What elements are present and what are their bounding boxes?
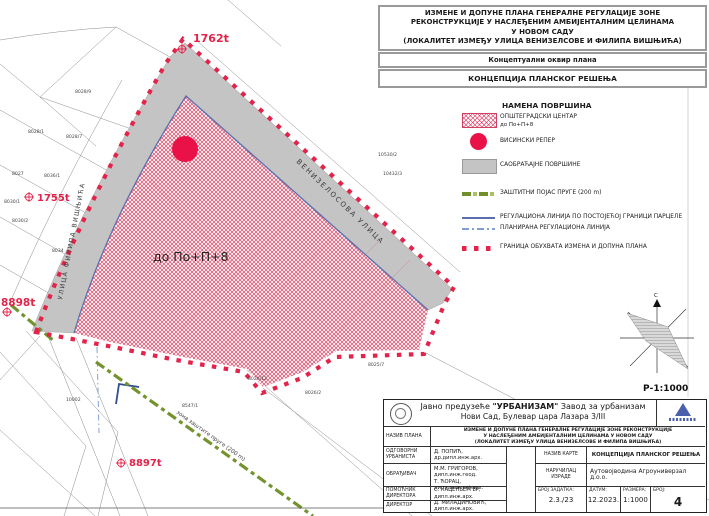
legend-item-label: ПЛАНИРАНА РЕГУЛАЦИОНА ЛИНИЈА [500,225,610,231]
razmera-cell: РАЗМЕРА: 1:1000 [621,487,651,512]
benchmark-label: 8898t [1,297,35,309]
svg-text:8027: 8027 [12,171,24,177]
blue-solid-line-icon [462,217,495,219]
svg-text:8036/1: 8036/1 [44,173,60,179]
svg-text:8547/1: 8547/1 [182,403,198,409]
benchmark-label: 1762t [193,32,229,45]
svg-text:10002: 10002 [66,397,81,403]
signature-column [507,447,536,512]
red-circle-icon [470,133,487,150]
narucilac-value: Аутовојводина Агроуниверзал д.о.о. [587,464,705,487]
naziv-karte-value: КОНЦЕПЦИЈА ПЛАНСКОГ РЕШЕЊА [587,447,705,464]
railway-zone-label: зона заштите пруге (200 m) [175,410,246,463]
gray-area-swatch-icon [462,159,497,174]
legend-item-label: РЕГУЛАЦИОНА ЛИНИЈА ПО ПОСТОЈЕЋОЈ ГРАНИЦИ… [500,214,682,220]
title-block-header: Јавно предузеће "УРБАНИЗАМ" Завод за урб… [384,400,705,427]
narucilac-label: НАРУЧИЛАЦ ИЗРАДЕ [536,464,587,487]
sheet-header: ИЗМЕНЕ И ДОПУНЕ ПЛАНА ГЕНЕРАЛНЕ РЕГУЛАЦИ… [378,5,707,88]
legend-item-label: ГРАНИЦА ОБУХВАТА ИЗМЕНА И ДОПУНА ПЛАНА [500,244,647,250]
broj-value: 4 [651,495,705,509]
pomocnik-label: ПОМОЋНИК ДИРЕКТОРА [384,487,431,501]
pomocnik-value: С. КАЦЕНБЕРГЕР, дипл.инж.арх. [431,487,507,501]
red-crosshatch-swatch-icon [462,113,497,128]
red-dashed-boundary-icon [462,246,495,251]
legend-title: НАМЕНА ПОВРШИНА [502,101,592,110]
plan-title-line: У НОВОМ САДУ [381,28,704,37]
svg-text:8030/1: 8030/1 [4,199,20,205]
plan-title: ИЗМЕНЕ И ДОПУНЕ ПЛАНА ГЕНЕРАЛНЕ РЕГУЛАЦИ… [378,5,707,51]
legend-item-label: ОПШТЕГРАДСКИ ЦЕНТАР [500,114,577,120]
legend: НАМЕНА ПОВРШИНА ОПШТЕГРАДСКИ ЦЕНТАР до П… [458,98,706,260]
svg-text:8030/2: 8030/2 [12,218,28,224]
plan-subtitle: Концептуални оквир плана [378,52,707,68]
odgovorni-value: Д. ПОПИЋ, др.дипл.инж.арх. [431,447,507,464]
svg-text:8026/2: 8026/2 [305,390,321,396]
obradjivac-label: ОБРАЂИВАЧ [384,464,431,487]
naziv-plana-line: (ЛОКАЛИТЕТ ИЗМЕЂУ УЛИЦА ВЕНИЗЕЛСОВЕ И ФИ… [431,440,705,446]
north-orientation-figure: С Р-1:1000 [620,293,694,394]
legend-item-label: ЗАШТИТНИ ПОЈАС ПРУГЕ (200 m) [500,190,601,196]
broj-zadatka-value: 2.3./23 [536,496,586,504]
direktor-value: Д. МИЛАДИНОВИЋ, дипл.инж.арх. [431,501,507,512]
plan-title-line: ИЗМЕНЕ И ДОПУНЕ ПЛАНА ГЕНЕРАЛНЕ РЕГУЛАЦИ… [381,9,704,18]
company-name-line: Јавно предузеће "УРБАНИЗАМ" Завод за урб… [414,402,652,411]
map-title: КОНЦЕПЦИЈА ПЛАНСКОГ РЕШЕЊА [378,69,707,88]
legend-item-label: САОБРАЋАЈНЕ ПОВРШИНЕ [500,162,580,168]
broj-cell: БРОЈ: 4 [651,487,705,512]
svg-text:8026/12: 8026/12 [248,376,267,382]
planned-regulation-detail [116,384,139,404]
benchmark-circle [172,136,198,162]
obradjivac-value: М.М. ГРИГОРОВ, дипл.инж.геод. Т. ЋОРАЦ, … [431,464,507,487]
client-logo-text-icon [669,418,697,421]
broj-zadatka-cell: БРОЈ ЗАДАТКА: 2.3./23 [536,487,587,512]
company-address: Нови Сад, Булевар цара Лазара 3/III [414,412,652,421]
svg-text:8028/9: 8028/9 [75,89,91,95]
plan-title-line: РЕКОНСТРУКЦИЈЕ У НАСЛЕЂЕНИМ АМБИЈЕНТАЛНИ… [381,18,704,27]
svg-text:8034: 8034 [52,248,64,254]
plan-title-line: (ЛОКАЛИТЕТ ИЗМЕЂУ УЛИЦА ВЕНИЗЕЛСОВЕ И ФИ… [381,37,704,46]
legend-item-label: ВИСИНСКИ РЕПЕР [500,138,555,144]
obradjivac-value-line: М.М. ГРИГОРОВ, дипл.инж.геод. [434,466,503,479]
zone-height-label: до По+П+8 [153,249,229,264]
plan-sheet: 1762t 1755t 8898t 8897t до По+П+8 УЛИЦА … [0,0,709,516]
naziv-plana-value: ИЗМЕНЕ И ДОПУНЕ ПЛАНА ГЕНЕРАЛНЕ РЕГУЛАЦИ… [431,427,705,447]
datum-value: 12.2023. [587,496,620,504]
naziv-plana-label: НАЗИВ ПЛАНА [384,427,431,447]
title-block: Јавно предузеће "УРБАНИЗАМ" Завод за урб… [383,399,707,513]
svg-text:8028/1: 8028/1 [28,129,44,135]
datum-label: ДАТУМ: [587,487,620,494]
benchmark-marker [116,458,126,468]
client-logo [656,400,709,426]
company-seal-icon [390,403,412,425]
broj-label: БРОЈ: [651,487,705,494]
company-heading: Јавно предузеће "УРБАНИЗАМ" Завод за урб… [414,402,652,421]
broj-zadatka-label: БРОЈ ЗАДАТКА: [536,487,586,494]
benchmark-label: 8897t [129,458,162,469]
svg-text:8028/7: 8028/7 [66,134,82,140]
blue-dashed-line-icon [462,228,495,230]
svg-text:10530/2: 10530/2 [378,152,397,158]
svg-text:10432/3: 10432/3 [383,171,402,177]
north-letter: С [654,293,658,299]
naziv-karte-label: НАЗИВ КАРТЕ [536,447,587,464]
green-dashed-line-icon [462,192,495,196]
legend-item-sublabel: до По+П+8 [500,122,533,128]
client-logo-triangle-icon [675,403,691,416]
svg-text:8025/7: 8025/7 [368,362,384,368]
razmera-value: 1:1000 [621,496,650,504]
north-arrow-icon [653,299,661,307]
datum-cell: ДАТУМ: 12.2023. [587,487,621,512]
situation-scale-label: Р-1:1000 [643,384,688,394]
benchmark-marker [24,192,34,202]
benchmark-label: 1755t [37,193,70,204]
direktor-label: ДИРЕКТОР [384,501,431,512]
razmera-label: РАЗМЕРА: [621,487,650,494]
odgovorni-label: ОДГОВОРНИ УРБАНИСТА [384,447,431,464]
